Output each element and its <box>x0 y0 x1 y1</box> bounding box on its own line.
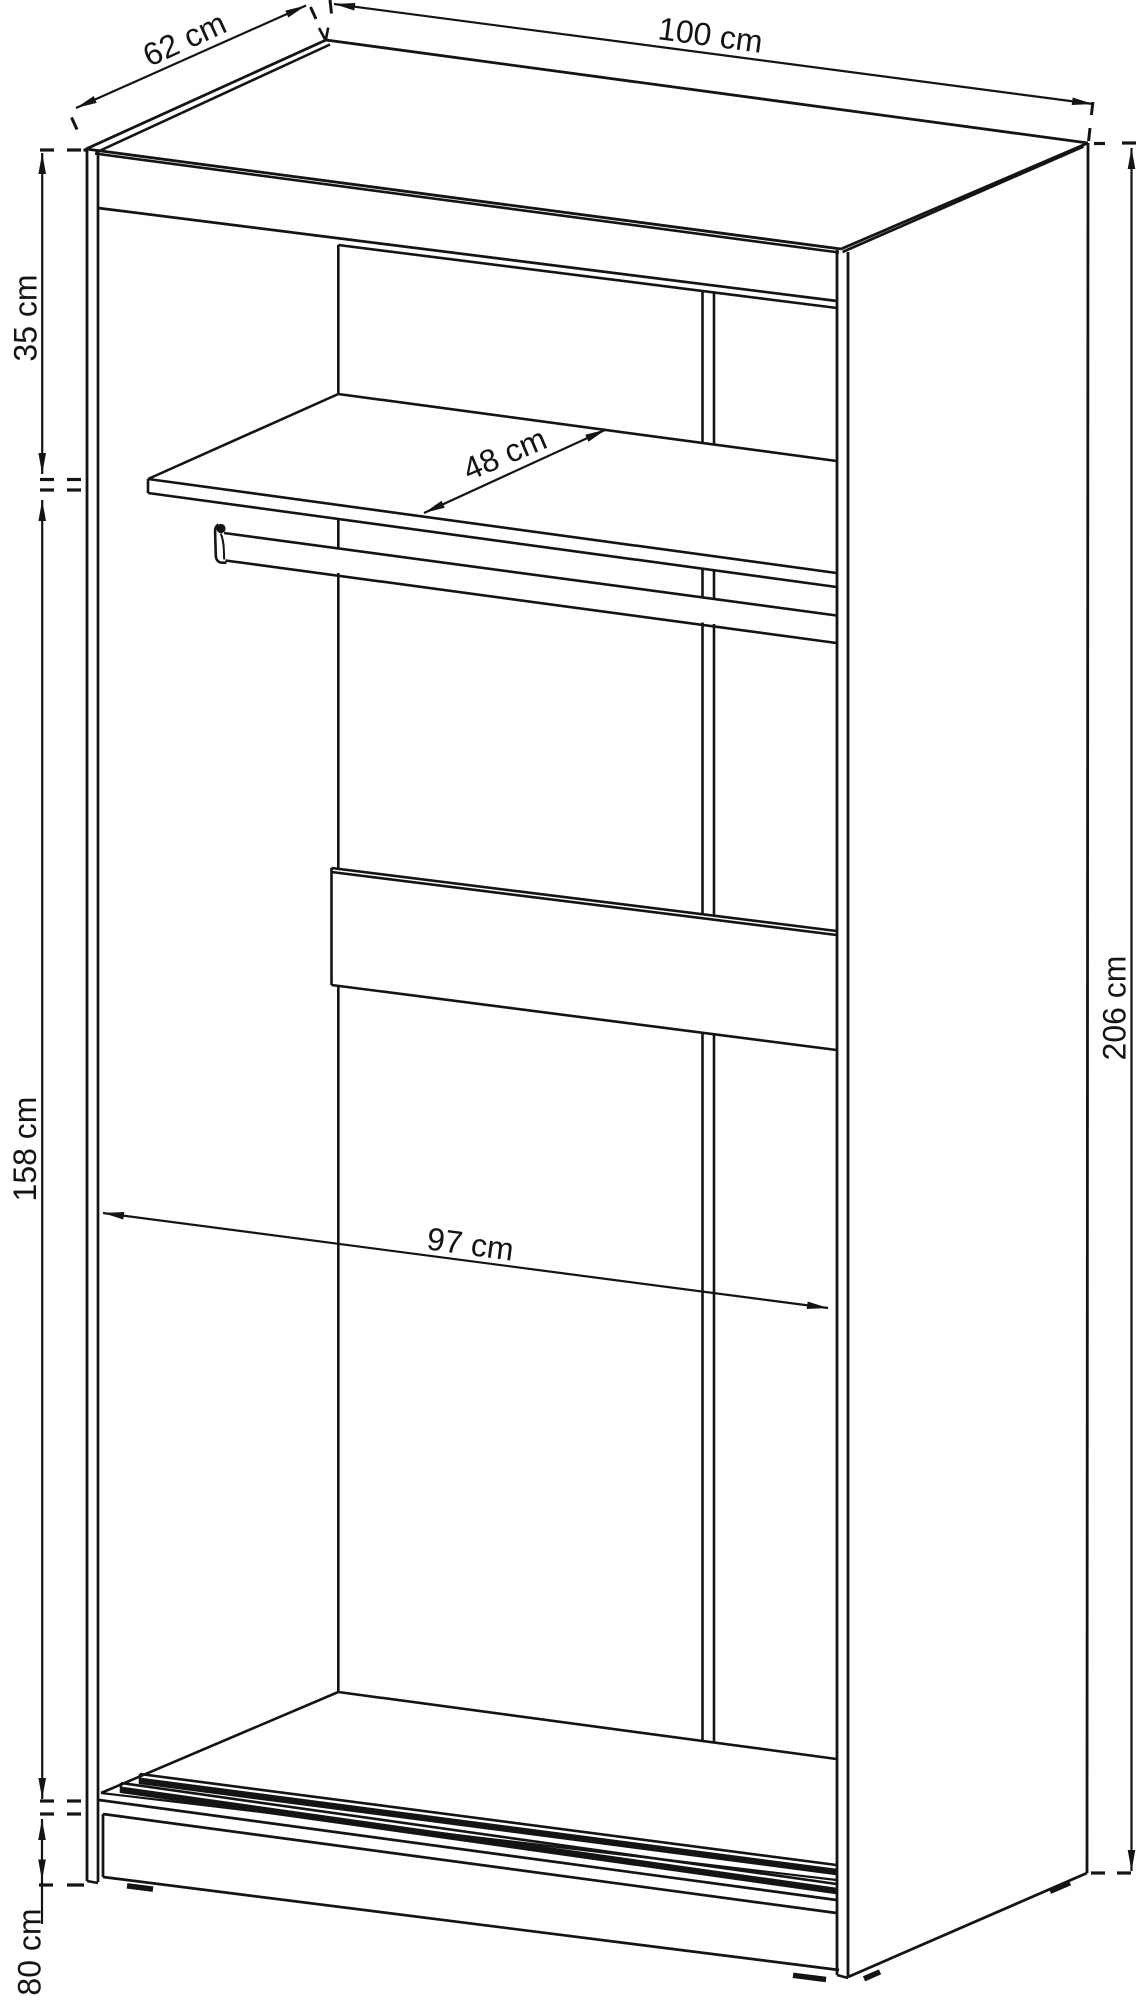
svg-text:35 cm: 35 cm <box>7 274 43 361</box>
svg-text:158 cm: 158 cm <box>7 1097 43 1202</box>
svg-text:206 cm: 206 cm <box>1096 956 1132 1061</box>
svg-text:80 cm: 80 cm <box>11 1908 47 1995</box>
